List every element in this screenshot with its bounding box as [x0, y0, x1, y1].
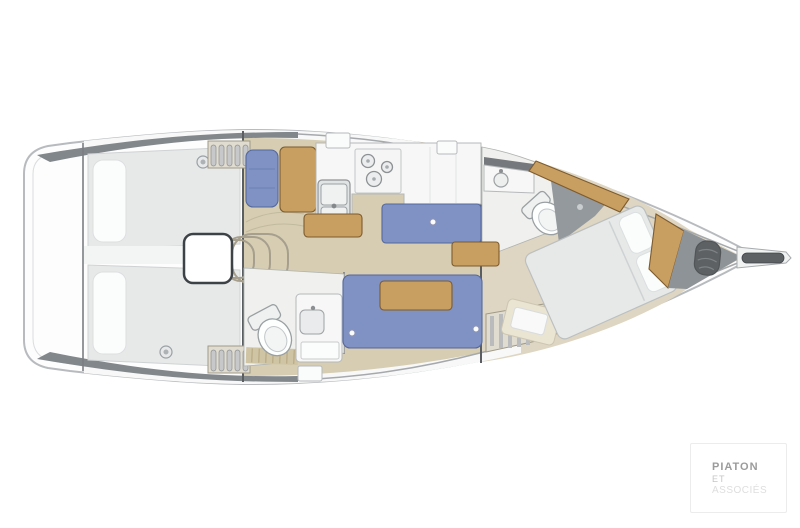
watermark-line1: PIATON	[712, 461, 786, 474]
deck-hatch-icon	[298, 366, 322, 381]
wood-sideboard	[452, 242, 499, 266]
faucet-icon	[499, 169, 503, 173]
sink-icon	[494, 173, 508, 187]
table-leg-screw	[430, 219, 436, 225]
hanger-icon	[235, 350, 240, 371]
aft-head	[244, 268, 344, 366]
table-leg-screw	[473, 326, 479, 332]
walkway	[84, 246, 184, 264]
deck-hatch-port-center	[201, 160, 206, 165]
boat-floorplan-page: PIATON ET ASSOCIÉS	[0, 0, 800, 528]
anchor-icon	[693, 240, 721, 276]
aft-pillow-starboard	[93, 272, 126, 354]
deck-hatch-starboard-center	[164, 350, 169, 355]
hanger-icon	[219, 145, 224, 166]
hanger-icon	[227, 145, 232, 166]
deck-hatch-icon	[326, 133, 350, 148]
anchor-roller	[742, 253, 784, 263]
watermark-card: PIATON ET ASSOCIÉS	[690, 443, 787, 513]
hanger-icon	[227, 350, 232, 371]
aft-pillow-port	[93, 160, 126, 242]
boat-floorplan	[0, 0, 800, 528]
nav-seat	[246, 150, 278, 207]
hanger-icon	[235, 145, 240, 166]
watermark-line3: ASSOCIÉS	[712, 485, 786, 497]
vanity-drawer	[301, 342, 339, 359]
watermark-line2: ET	[712, 474, 786, 485]
shower-drain-icon	[577, 204, 583, 210]
hanging-locker-top	[208, 141, 250, 168]
deck-hatch-icon	[437, 141, 457, 154]
chart-table	[280, 147, 316, 212]
sink-icon	[300, 310, 324, 334]
hanger-icon	[211, 145, 216, 166]
companionway-hatch	[184, 234, 232, 283]
faucet-icon	[311, 306, 315, 310]
hanger-icon	[211, 350, 216, 371]
stove	[355, 149, 401, 193]
galley-wood-chest	[304, 214, 362, 237]
salon-table	[380, 281, 452, 310]
bow	[668, 230, 791, 289]
hanger-icon	[219, 350, 224, 371]
table-leg-screw	[349, 330, 355, 336]
